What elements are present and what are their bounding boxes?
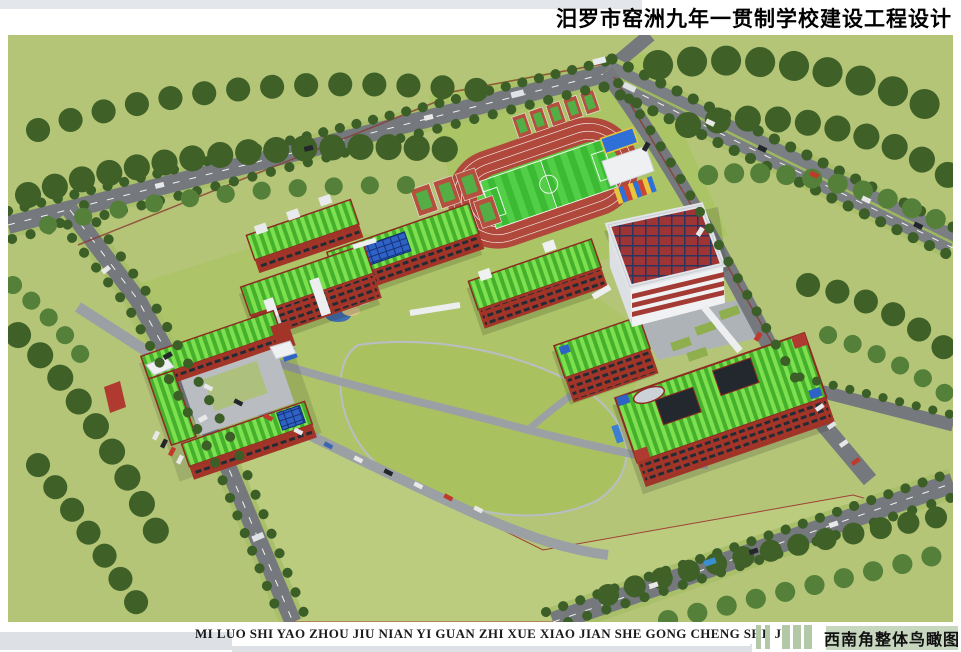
divider-bars-icon	[804, 625, 812, 649]
header-divider-bar	[0, 0, 642, 9]
divider-bars-icon	[765, 625, 770, 649]
pinyin-subtitle: MI LUO SHI YAO ZHOU JIU NIAN YI GUAN ZHI…	[232, 622, 750, 646]
page-title: 汨罗市窑洲九年一贯制学校建设工程设计	[556, 3, 952, 33]
divider-bars-icon	[782, 625, 790, 649]
divider-bars-icon	[793, 625, 801, 649]
divider-bars-icon	[756, 625, 761, 649]
view-caption-badge: 西南角整体鸟瞰图	[826, 626, 958, 650]
birdseye-rendering	[8, 35, 953, 622]
